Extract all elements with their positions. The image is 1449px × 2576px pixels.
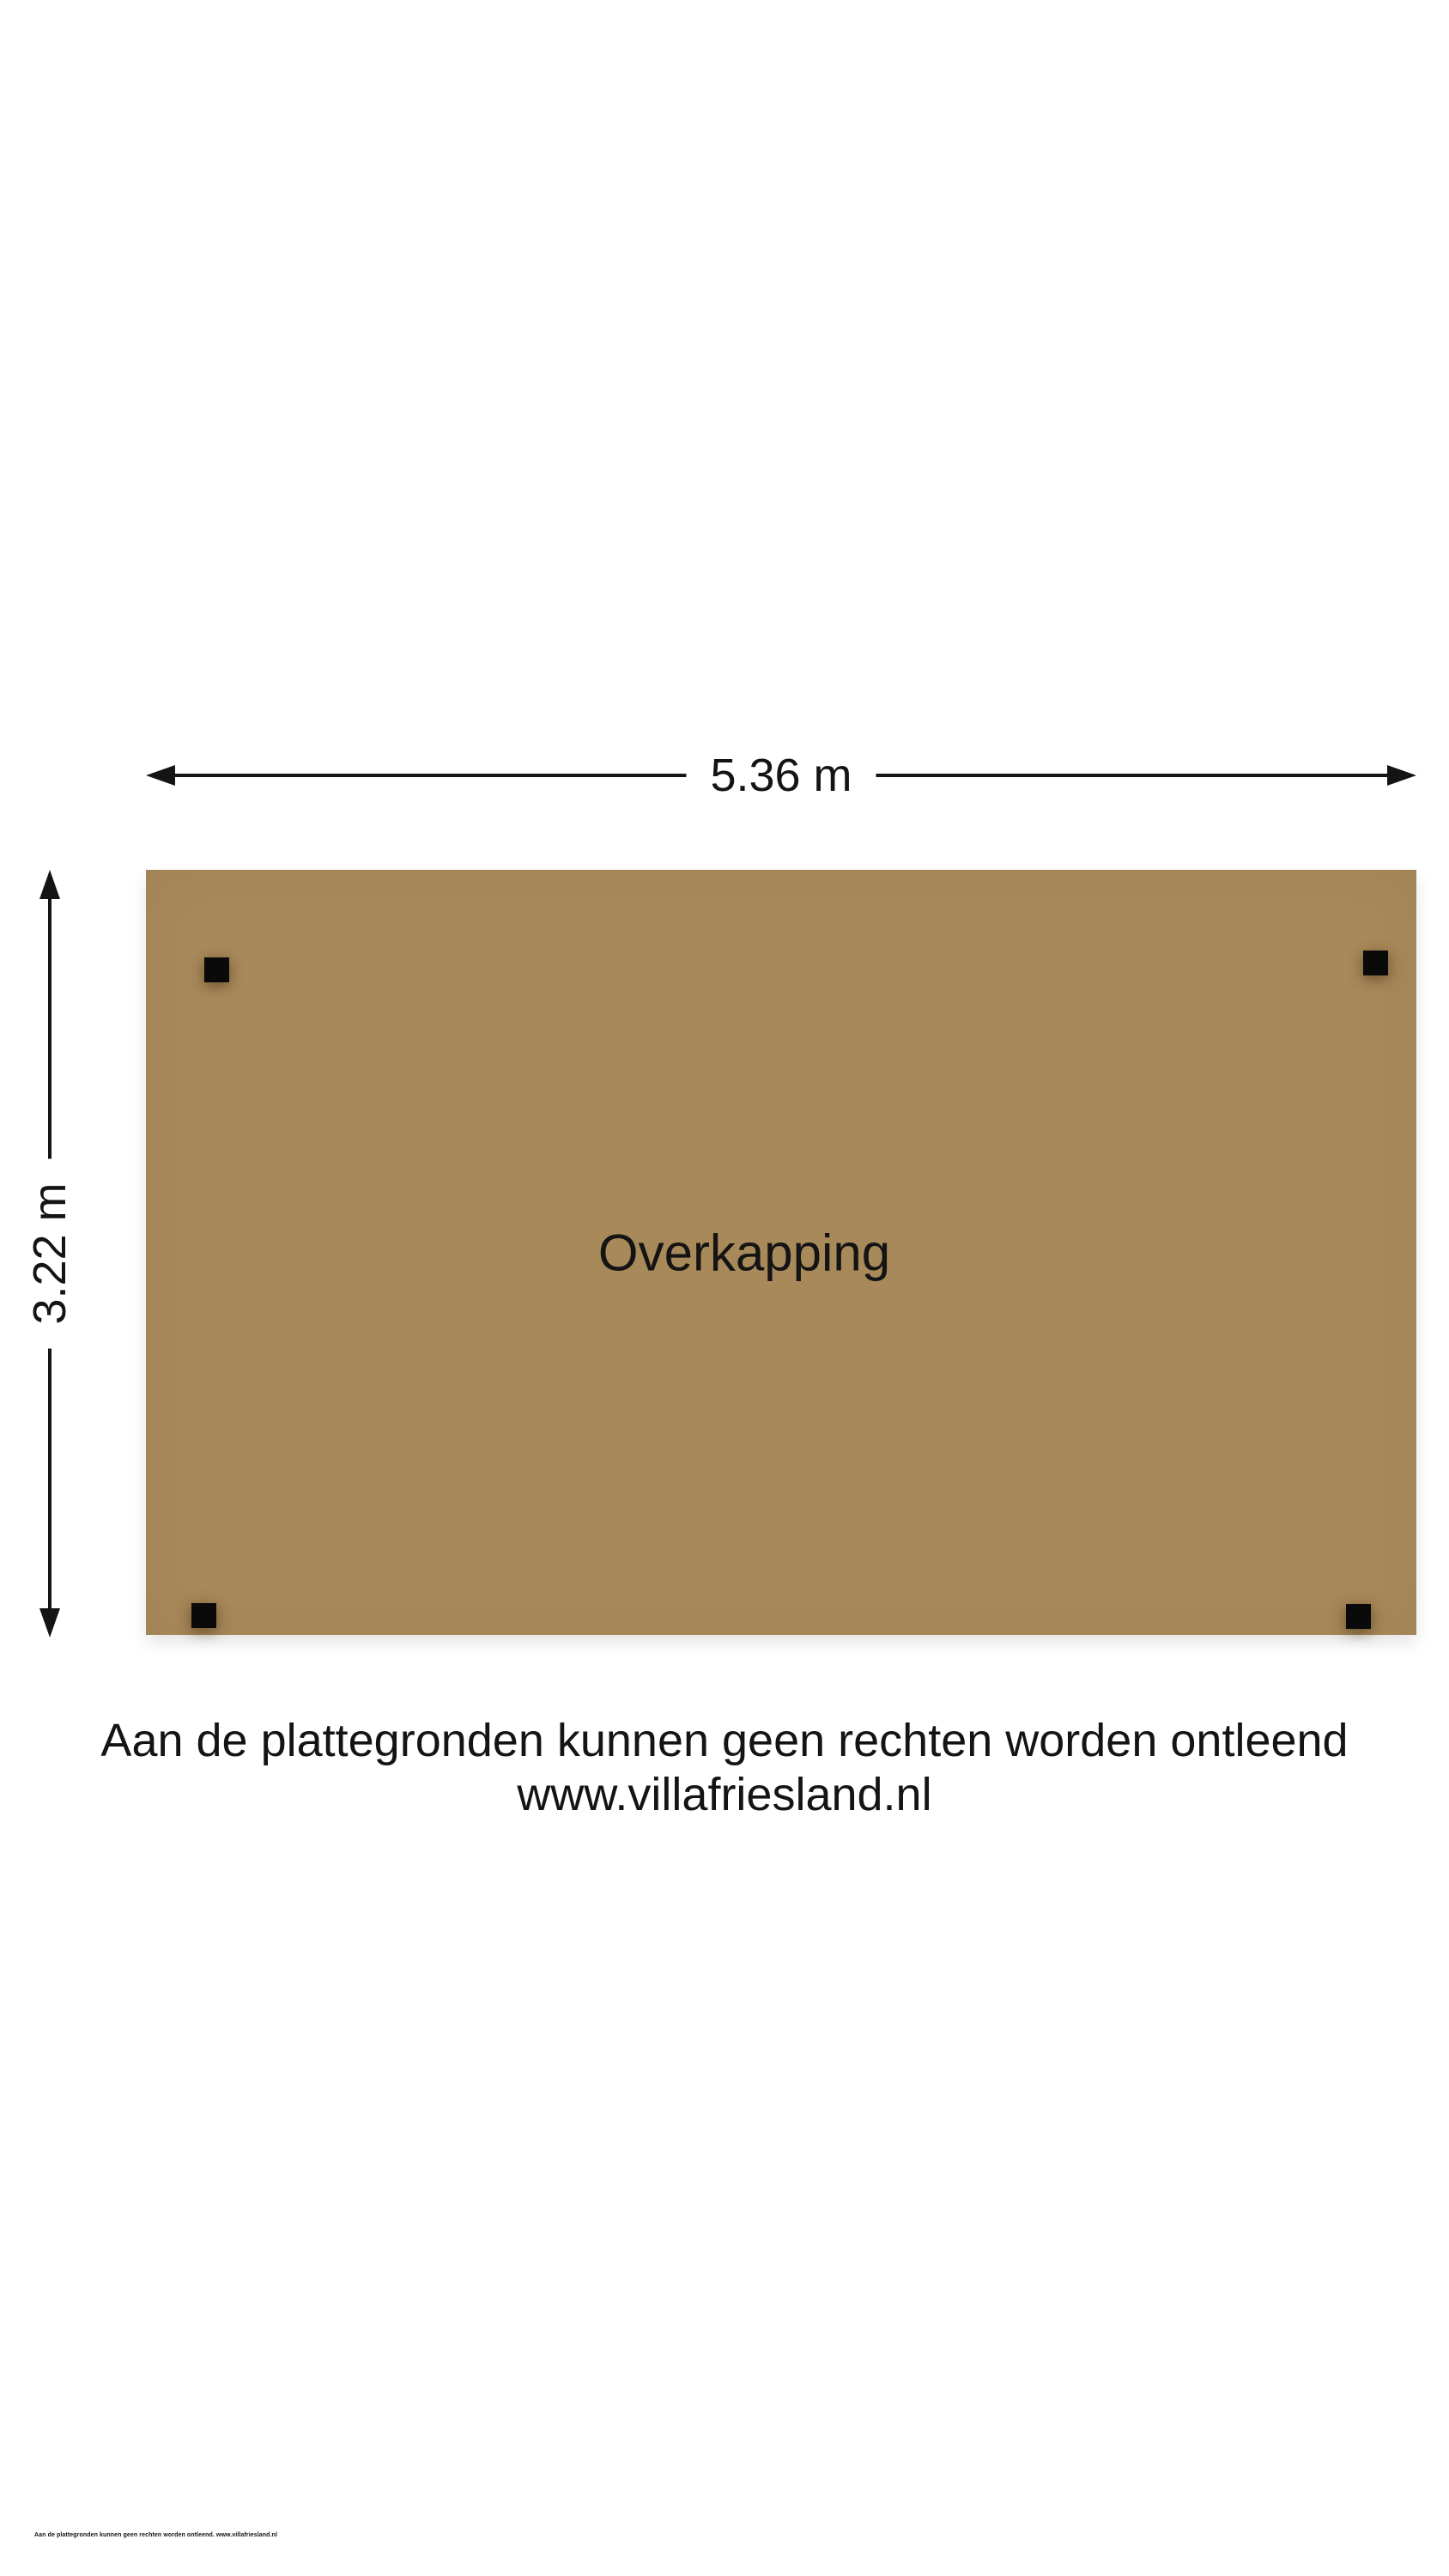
width-dimension: 5.36 m [146, 758, 1416, 793]
arrow-left-icon [146, 765, 175, 786]
room-label: Overkapping [598, 1223, 890, 1282]
post-marker-top-left [204, 957, 229, 982]
room-overkapping: Overkapping [146, 870, 1416, 1635]
arrow-right-icon [1387, 765, 1416, 786]
height-dimension: 3.22 m [33, 870, 67, 1637]
post-marker-bottom-left [191, 1603, 216, 1628]
post-marker-top-right [1363, 951, 1388, 975]
post-marker-bottom-right [1346, 1604, 1371, 1629]
footer-note: Aan de plattegronden kunnen geen rechten… [34, 2532, 277, 2538]
arrow-up-icon [39, 870, 60, 899]
arrow-down-icon [39, 1608, 60, 1637]
disclaimer: Aan de plattegronden kunnen geen rechten… [0, 1714, 1449, 1822]
floorplan-page: 5.36 m 3.22 m Overkapping Aan de platteg… [0, 0, 1449, 2576]
disclaimer-line1: Aan de plattegronden kunnen geen rechten… [0, 1714, 1449, 1768]
disclaimer-line2: www.villafriesland.nl [0, 1768, 1449, 1822]
height-dimension-label: 3.22 m [23, 1158, 76, 1348]
width-dimension-label: 5.36 m [686, 749, 876, 802]
